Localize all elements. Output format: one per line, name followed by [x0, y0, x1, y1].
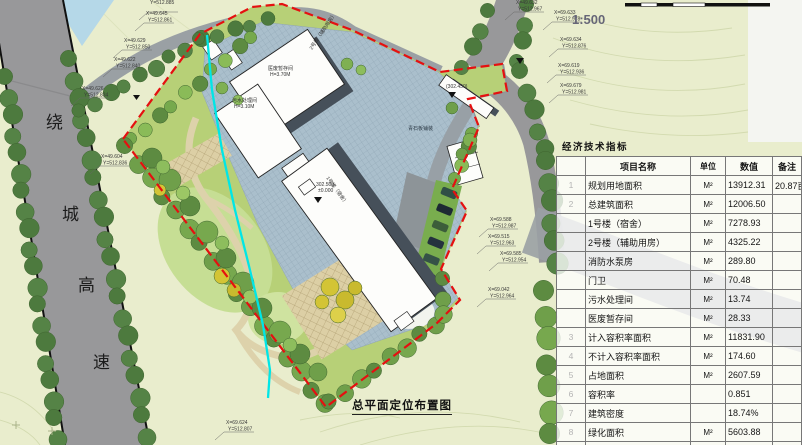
tree-icon [114, 310, 132, 328]
tree-icon [243, 20, 255, 32]
table-row: 7建筑密度18.74% [557, 404, 802, 423]
tree-icon [154, 184, 166, 196]
svg-text:X=49.626: X=49.626 [82, 86, 104, 92]
tree-icon [162, 50, 175, 63]
tree-icon [164, 101, 176, 113]
svg-text:X=69.619: X=69.619 [558, 63, 580, 69]
tree-icon [117, 80, 130, 93]
tree-icon [480, 3, 494, 17]
svg-text:Y=512.834: Y=512.834 [84, 93, 109, 99]
tree-icon [446, 102, 458, 114]
table-cell: 13912.31 [726, 176, 773, 195]
site-plan-screenshot: 绕 城 高 速 [0, 0, 802, 445]
tree-icon [97, 231, 113, 247]
table-cell: 12006.50 [726, 195, 773, 214]
svg-text:Y=512.840: Y=512.840 [116, 64, 141, 70]
table-cell: M² [691, 290, 726, 309]
tree-icon [454, 60, 468, 74]
col-header-name: 项目名称 [586, 157, 691, 176]
table-cell: M² [691, 347, 726, 366]
table-cell: 289.80 [726, 252, 773, 271]
svg-text:X=49.629: X=49.629 [124, 38, 146, 44]
table-row: 6容积率0.851 [557, 385, 802, 404]
table-cell [773, 423, 802, 442]
table-cell: 9 [557, 442, 586, 445]
tree-icon [435, 306, 453, 324]
svg-text:Y=512.954: Y=512.954 [502, 258, 527, 264]
col-header-value: 数值 [726, 157, 773, 176]
drawing-title: 总平面定位布置图 [352, 397, 452, 415]
table-row: 污水处理间M²13.74 [557, 290, 802, 309]
table-cell: 建筑密度 [586, 404, 691, 423]
table-cell [557, 309, 586, 328]
table-cell: 绿化面积 [586, 423, 691, 442]
tree-icon [178, 85, 192, 99]
tree-icon [192, 32, 204, 44]
table-cell: M² [691, 252, 726, 271]
map-edge-blank [748, 0, 802, 142]
tree-icon [216, 82, 228, 94]
table-cell [691, 442, 726, 445]
table-cell: 7278.93 [726, 214, 773, 233]
tree-icon [8, 143, 26, 161]
tree-icon [283, 338, 297, 352]
table-row: 9绿地率40.28% [557, 442, 802, 445]
svg-text:X=69.588: X=69.588 [490, 217, 512, 223]
table-cell: 占地面积 [586, 366, 691, 385]
table-cell: 18.74% [726, 404, 773, 423]
table-cell: 2号楼（辅助用房） [586, 233, 691, 252]
table-cell: 174.60 [726, 347, 773, 366]
table-cell: 绿地率 [586, 442, 691, 445]
table-cell: 2607.59 [726, 366, 773, 385]
table-title: 经济技术指标 [562, 139, 802, 153]
table-cell: 计入容积率面积 [586, 328, 691, 347]
table-cell [691, 385, 726, 404]
tree-icon [72, 104, 85, 117]
tree-icon [37, 356, 53, 372]
tree-icon [517, 18, 533, 34]
tree-icon [176, 186, 190, 200]
svg-text:H=3.10M: H=3.10M [234, 104, 254, 110]
svg-text:X=49.622: X=49.622 [114, 57, 136, 63]
table-cell: 2 [557, 195, 586, 214]
tree-icon [28, 278, 48, 298]
tree-icon [106, 269, 126, 289]
svg-text:Y=512.967: Y=512.967 [518, 7, 543, 13]
table-cell [557, 271, 586, 290]
tree-icon [535, 306, 557, 328]
svg-text:Y=512.885: Y=512.885 [150, 0, 175, 6]
tree-icon [178, 43, 193, 58]
table-cell [691, 404, 726, 423]
table-cell: 规划用地面积 [586, 176, 691, 195]
drawing-scale: 1:500 [572, 12, 605, 27]
table-cell [773, 385, 802, 404]
tree-icon [65, 72, 83, 90]
highway-label-char: 速 [93, 353, 110, 372]
tree-icon [20, 218, 40, 238]
table-row: 5占地面积M²2607.59 [557, 366, 802, 385]
tree-icon [138, 123, 152, 137]
tree-icon [215, 236, 229, 250]
table-cell [773, 214, 802, 233]
tree-icon [514, 32, 532, 50]
svg-text:Y=512.963: Y=512.963 [490, 241, 515, 247]
table-cell: M² [691, 233, 726, 252]
table-cell: M² [691, 328, 726, 347]
table-cell: 1号楼（宿舍） [586, 214, 691, 233]
table-cell [773, 252, 802, 271]
svg-text:X=49.632: X=49.632 [516, 0, 538, 6]
tree-icon [292, 361, 312, 381]
table-row: 8绿化面积M²5603.88 [557, 423, 802, 442]
svg-text:Y=512.964: Y=512.964 [490, 294, 515, 300]
svg-text:X=69.624: X=69.624 [226, 420, 248, 426]
table-cell: 5603.88 [726, 423, 773, 442]
svg-text:X=69.679: X=69.679 [560, 83, 582, 89]
tree-icon [455, 159, 469, 173]
table-cell [773, 347, 802, 366]
tree-icon [412, 326, 427, 341]
tree-icon [131, 388, 151, 408]
tree-icon [244, 31, 256, 43]
table-cell: 6 [557, 385, 586, 404]
svg-text:Y=512.987: Y=512.987 [492, 224, 517, 230]
svg-text:±0.000: ±0.000 [318, 188, 333, 194]
table-cell: 70.48 [726, 271, 773, 290]
table-row: 1规划用地面积M²13912.3120.87亩 [557, 176, 802, 195]
economic-indicators-panel: 经济技术指标 项目名称 单位 数值 备注 1规划用地面积M²13912.3120… [556, 139, 802, 445]
sewage-room-label: 污水处理间 [232, 97, 257, 104]
table-row: 4不计入容积率面积M²174.60 [557, 347, 802, 366]
table-cell [557, 214, 586, 233]
table-cell: 40.28% [726, 442, 773, 445]
col-header-no [557, 157, 586, 176]
tree-icon [94, 207, 114, 227]
table-cell: 消防水泵房 [586, 252, 691, 271]
tree-icon [11, 164, 31, 184]
tree-icon [21, 242, 37, 258]
scale-bar [625, 3, 770, 7]
tree-icon [88, 97, 103, 112]
table-row: 2号楼（辅助用房）M²4325.22 [557, 233, 802, 252]
tree-icon [228, 21, 244, 37]
tree-icon [46, 409, 62, 425]
table-row: 消防水泵房M²289.80 [557, 252, 802, 271]
tree-icon [356, 65, 366, 75]
paving-label: 青石板铺装 [408, 125, 433, 132]
col-header-unit: 单位 [691, 157, 726, 176]
tree-icon [116, 137, 132, 153]
svg-text:X=49.604: X=49.604 [101, 154, 123, 160]
table-body: 项目名称 单位 数值 备注 1规划用地面积M²13912.3120.87亩2总建… [557, 157, 802, 445]
table-cell [557, 290, 586, 309]
tree-icon [536, 355, 556, 375]
highway-label-char: 绕 [46, 113, 63, 132]
tree-icon [472, 24, 488, 40]
tree-icon [36, 332, 56, 352]
tree-icon [148, 60, 165, 77]
svg-text:H=3.70M: H=3.70M [270, 72, 290, 78]
table-cell: M² [691, 423, 726, 442]
economic-indicators-table: 项目名称 单位 数值 备注 1规划用地面积M²13912.3120.87亩2总建… [556, 156, 802, 445]
table-row: 医废暂存间M²28.33 [557, 309, 802, 328]
tree-icon [156, 160, 170, 174]
tree-icon [330, 307, 346, 323]
svg-text:X=69.585: X=69.585 [500, 251, 522, 257]
tree-icon [525, 100, 545, 120]
svg-text:X=49.645: X=49.645 [146, 11, 168, 17]
tree-icon [5, 128, 21, 144]
table-cell [773, 328, 802, 347]
tree-icon [218, 54, 232, 68]
svg-text:X=69.042: X=69.042 [488, 287, 510, 293]
tree-icon [398, 339, 417, 358]
tree-icon [210, 30, 224, 44]
tree-icon [533, 280, 553, 300]
table-cell [773, 233, 802, 252]
med-room-label: 医废暂存间 [268, 65, 293, 72]
svg-text:X=69.634: X=69.634 [560, 37, 582, 43]
table-cell: 门卫 [586, 271, 691, 290]
table-cell: 污水处理间 [586, 290, 691, 309]
elevation-label2: (302.450) [446, 84, 468, 90]
svg-text:Y=512.981: Y=512.981 [562, 90, 587, 96]
tree-icon [89, 191, 107, 209]
table-cell: 医废暂存间 [586, 309, 691, 328]
tree-icon [77, 129, 95, 147]
svg-text:Y=512.861: Y=512.861 [148, 18, 173, 24]
tree-icon [518, 84, 536, 102]
tree-icon [82, 151, 102, 171]
tree-icon [529, 124, 545, 140]
tree-icon [60, 50, 76, 66]
table-cell: 3 [557, 328, 586, 347]
table-row: 1号楼（宿舍）M²7278.93 [557, 214, 802, 233]
tree-icon [435, 292, 451, 308]
tree-icon [44, 392, 64, 412]
table-cell: 5 [557, 366, 586, 385]
table-cell: 4 [557, 347, 586, 366]
tree-icon [341, 58, 353, 70]
tree-icon [109, 288, 125, 304]
table-cell: M² [691, 214, 726, 233]
tree-icon [118, 326, 138, 346]
table-cell: 13.74 [726, 290, 773, 309]
table-cell: M² [691, 176, 726, 195]
highway-label-char: 高 [78, 276, 95, 295]
svg-text:Y=512.807: Y=512.807 [228, 427, 253, 433]
table-cell [557, 252, 586, 271]
table-cell: M² [691, 366, 726, 385]
table-cell: 1 [557, 176, 586, 195]
table-cell: M² [691, 309, 726, 328]
tree-icon [536, 151, 554, 169]
table-cell [773, 195, 802, 214]
tree-icon [303, 382, 319, 398]
table-cell [773, 271, 802, 290]
table-cell: 11831.90 [726, 328, 773, 347]
table-cell [773, 309, 802, 328]
tree-icon [511, 62, 527, 78]
table-header-row: 项目名称 单位 数值 备注 [557, 157, 802, 176]
highway-label-char: 城 [62, 205, 79, 224]
tree-icon [41, 371, 59, 389]
tree-icon [321, 278, 339, 296]
table-cell: M² [691, 195, 726, 214]
table-row: 2总建筑面积M²12006.50 [557, 195, 802, 214]
table-row: 3计入容积率面积M²11831.90 [557, 328, 802, 347]
table-cell: 总建筑面积 [586, 195, 691, 214]
table-cell [773, 366, 802, 385]
svg-text:Y=512.850: Y=512.850 [126, 45, 151, 51]
tree-icon [348, 281, 362, 295]
tree-icon [24, 257, 42, 275]
svg-text:Y=512.936: Y=512.936 [560, 70, 585, 76]
table-cell [773, 442, 802, 445]
tree-icon [138, 429, 156, 445]
svg-text:Y=512.836: Y=512.836 [103, 161, 128, 167]
table-cell: 不计入容积率面积 [586, 347, 691, 366]
table-cell: 0.851 [726, 385, 773, 404]
svg-text:Y=512.876: Y=512.876 [562, 44, 587, 50]
table-cell [773, 290, 802, 309]
svg-text:X=69.515: X=69.515 [488, 234, 510, 240]
tree-icon [13, 182, 29, 198]
col-header-note: 备注 [773, 157, 802, 176]
tree-icon [3, 105, 23, 125]
table-cell: 容积率 [586, 385, 691, 404]
tree-icon [133, 407, 149, 423]
tree-icon [464, 38, 482, 56]
table-cell: M² [691, 271, 726, 290]
table-cell [773, 404, 802, 423]
tree-icon [126, 366, 144, 384]
table-cell: 8 [557, 423, 586, 442]
table-row: 门卫M²70.48 [557, 271, 802, 290]
tree-icon [102, 247, 120, 265]
tree-icon [29, 296, 45, 312]
tree-icon [121, 350, 137, 366]
table-cell: 20.87亩 [773, 176, 802, 195]
tree-icon [192, 76, 208, 92]
table-cell: 7 [557, 404, 586, 423]
table-cell: 28.33 [726, 309, 773, 328]
tree-icon [309, 363, 327, 381]
table-cell [557, 233, 586, 252]
tree-icon [315, 295, 329, 309]
table-cell: 4325.22 [726, 233, 773, 252]
tree-icon [261, 12, 275, 26]
